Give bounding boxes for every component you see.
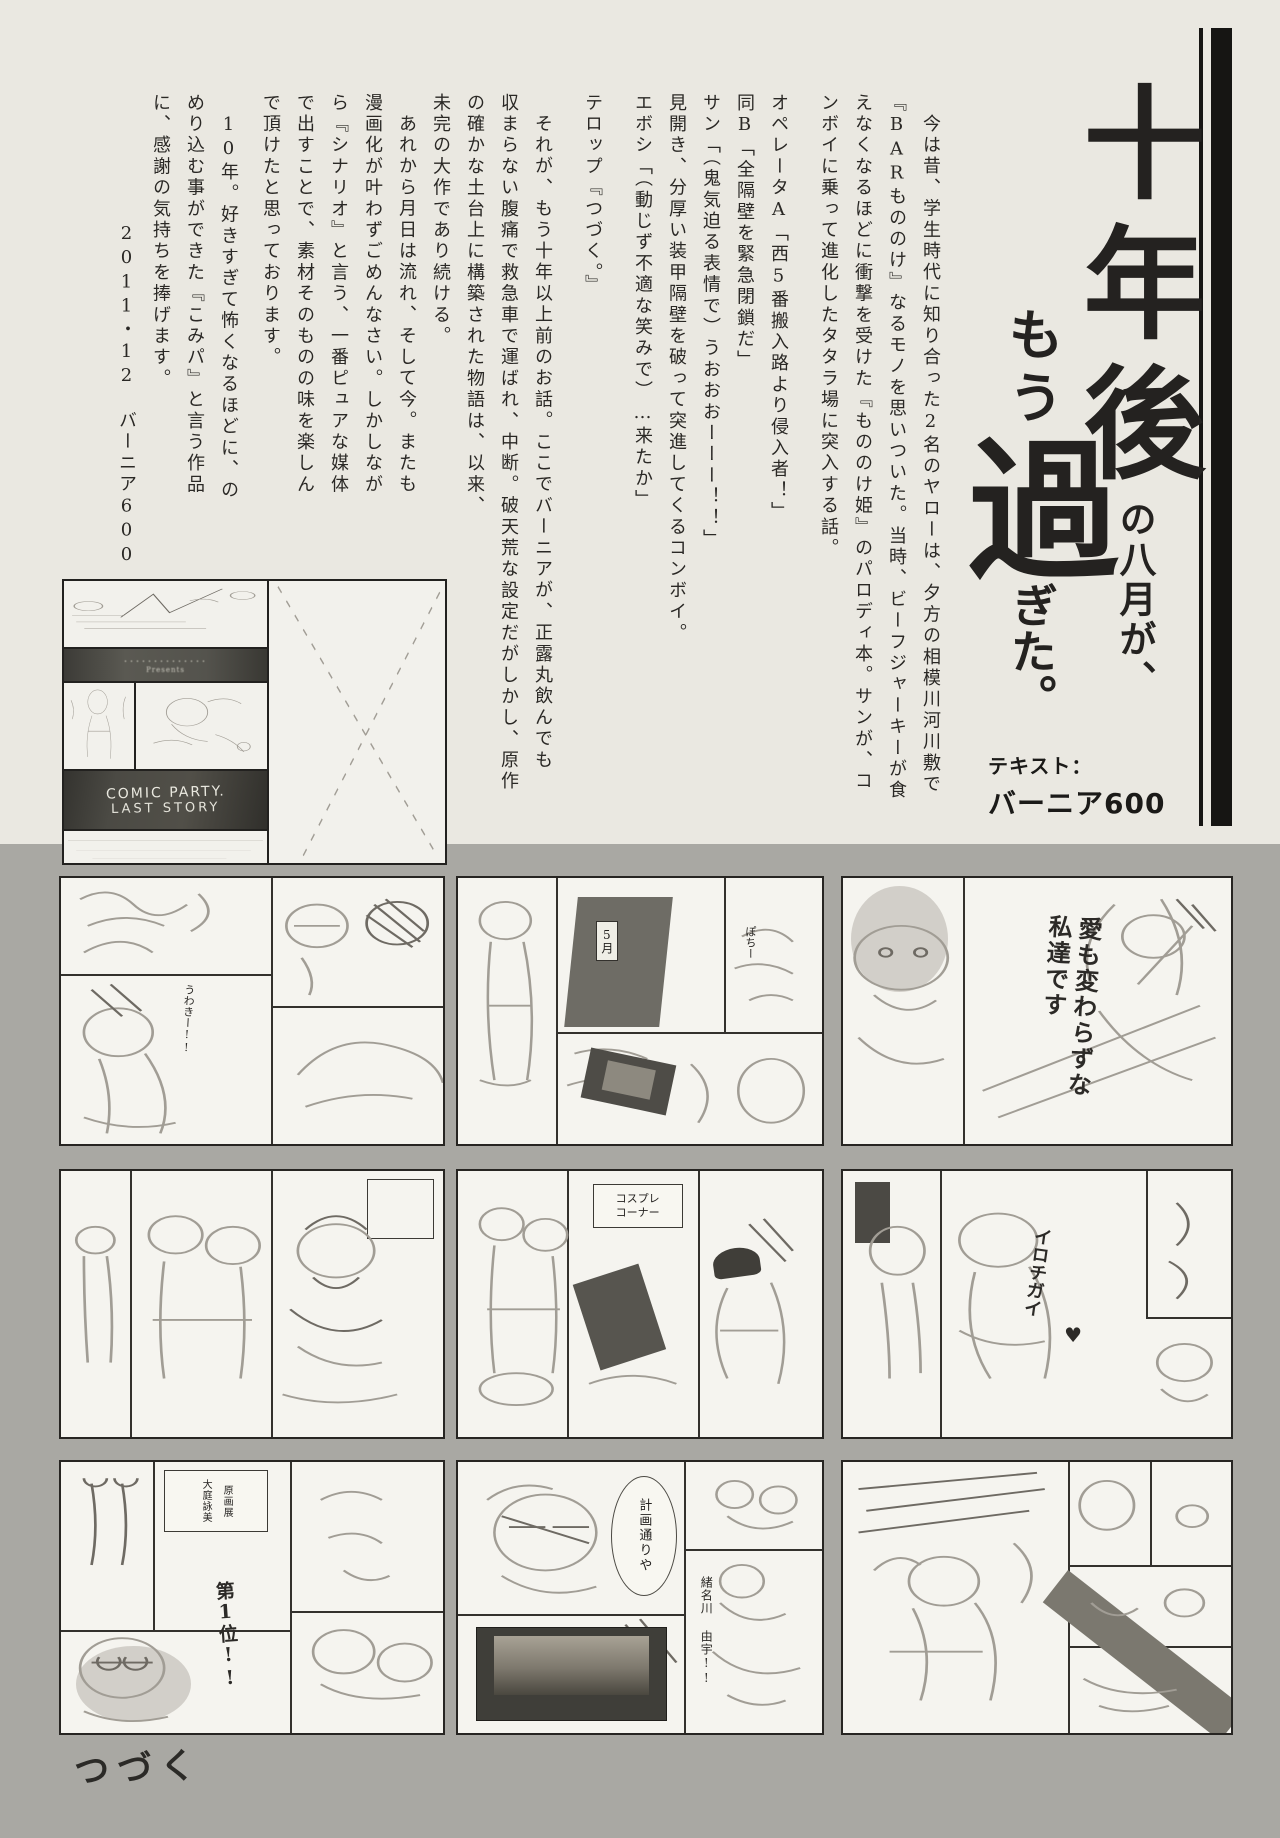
sketch-strokes [458, 1171, 822, 1437]
body-column: サン「（鬼気迫る表情で）うおおおーーー！！」 [699, 93, 722, 550]
body-column: ら『シナリオ』と言う、一番ピュアな媒体 [327, 93, 350, 496]
body-column: に、感謝の気持ちを捧げます。 [149, 93, 172, 390]
page-title-line2: もう過ぎた。 [952, 306, 1110, 766]
credit-label: テキスト： [988, 750, 1165, 779]
title-line2-small1: もう [999, 306, 1064, 432]
storyboard-panel-9 [841, 1460, 1233, 1735]
storyboard-panel-6: イロチガイ ♥ [841, 1169, 1233, 1439]
title-rule-thick [1211, 28, 1232, 826]
character-name-text: 緒名川 由宇!! [698, 1576, 715, 1706]
body-column: で出すことで、素材そのものの味を楽しん [293, 93, 316, 496]
heart-icon: ♥ [1064, 1323, 1082, 1347]
title-line2-big: 過 [943, 432, 1119, 582]
comic-party-band-line2: LAST STORY [111, 800, 221, 817]
mini-sketch-bottom-sliver [64, 831, 267, 863]
body-column: ンボイに乗って進化したタタラ場に突入する話。 [817, 93, 840, 559]
body-column-signoff: 2011・12 バーニア600 [115, 93, 138, 568]
title-line1-small: の八月が、 [1113, 500, 1157, 700]
dashed-cross-icon [271, 581, 445, 863]
panel-handwritten-note: ぽちー [742, 926, 758, 996]
tv-screen-panel [476, 1627, 667, 1721]
mini-storyboard-crossed-panel [271, 581, 445, 863]
sketch-strokes [61, 1462, 443, 1733]
storyboard-panel-2: 5月 ぽちー [456, 876, 824, 1146]
mini-sketch-row [64, 683, 267, 771]
storyboard-panel-4 [59, 1169, 445, 1439]
mini-presents-band: ･･････････････ Presents [64, 649, 267, 683]
body-column: あれから月日は流れ、そして今。またも [395, 93, 418, 496]
body-column: 見開き、分厚い装甲隔壁を破って突進してくるコンボイ。 [665, 93, 688, 644]
body-column: 同B「全隔壁を緊急閉鎖だ」 [733, 93, 756, 372]
speech-bubble-text: 計画通りや [634, 1498, 653, 1573]
text-credit: テキスト： バーニア600 [988, 750, 1165, 822]
sketch-strokes [64, 581, 267, 647]
body-column: 今は昔、学生時代に知り合った2名のヤローは、夕方の相模川河川敷で [919, 93, 942, 795]
body-column: オペレータA「西5番搬入路より侵入者！」 [767, 93, 790, 523]
body-column: 未完の大作であり続ける。 [429, 93, 452, 347]
mini-sketch-figure-right [138, 683, 267, 769]
credit-author: バーニア600 [988, 782, 1165, 822]
title-line2-small2: ぎた。 [1004, 582, 1058, 720]
sketch-strokes [64, 683, 134, 769]
sketch-strokes [843, 1462, 1231, 1733]
comic-party-band: COMIC PARTY. LAST STORY [64, 771, 267, 831]
storyboard-panel-5: コスプレ コーナー [456, 1169, 824, 1439]
storyboard-panel-3: 愛も変わらずな私達です [841, 876, 1233, 1146]
speech-bubble: 計画通りや [611, 1476, 677, 1596]
body-column: 漫画化が叶わずごめんなさい。しかしなが [361, 93, 384, 496]
doujinshi-page: 十年後の八月が、 もう過ぎた。 テキスト： バーニア600 今は昔、学生時代に知… [0, 0, 1280, 1838]
sketch-strokes [61, 878, 443, 1144]
body-column: 『BARもののけ』なるモノを思いついた。当時、ビーフジャーキーが食 [885, 93, 908, 802]
storyboard-panel-1: うわきー!! [59, 876, 445, 1146]
comic-party-band-line1: COMIC PARTY. [105, 783, 225, 802]
body-column: 10年。好きすぎて怖くなるほどに、の [217, 93, 240, 502]
sketch-strokes [138, 683, 267, 769]
mini-sketch-figure-left [64, 683, 136, 769]
body-column: えなくなるほどに衝撃を受けた『もののけ姫』のパロディ本。サンが、コ [851, 93, 874, 793]
body-column: の確かな土台上に構築された物語は、以来、 [463, 93, 486, 517]
mini-storyboard-left-column: ･･････････････ Presents [64, 581, 269, 863]
sketch-strokes [64, 831, 267, 863]
storyboard-panel-8: 計画通りや 緒名川 由宇!! [456, 1460, 824, 1735]
body-column: テロップ『つづく。』 [581, 93, 604, 296]
presents-band-line2: Presents [146, 666, 185, 674]
storyboard-panel-7: 大庭詠美 原画展 第1位!! [59, 1460, 445, 1735]
to-be-continued-text: つづく [73, 1737, 205, 1795]
mini-sketch-flying-object [64, 581, 267, 649]
body-column: めり込む事ができた『こみパ』と言う作品 [183, 93, 206, 496]
body-column: それが、もう十年以上前のお話。ここでバーニアが、正露丸飲んでも [531, 93, 554, 771]
presents-band-line1: ･･････････････ [124, 657, 208, 666]
body-column: 収まらない腹痛で救急車で運ばれ、中断。破天荒な設定だがしかし、原作 [497, 93, 520, 793]
mini-storyboard: ･･････････････ Presents [62, 579, 447, 865]
sketch-strokes [61, 1171, 443, 1437]
body-column: で頂けたと思っております。 [259, 93, 282, 369]
body-column: エボシ「（動じず不適な笑みで）…来たか」 [631, 93, 654, 511]
